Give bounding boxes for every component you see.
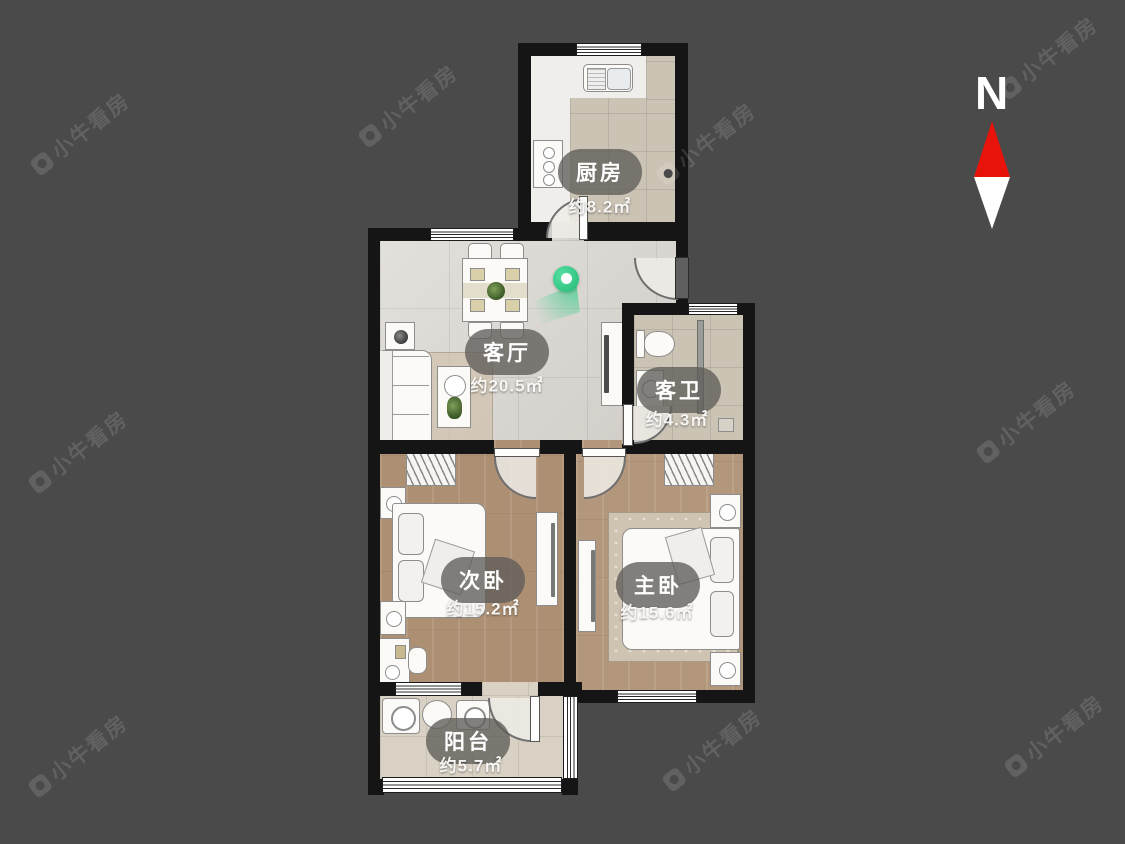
living-room-window [430,228,514,241]
watermark: 小牛看房 [353,57,464,153]
balcony-area: 约5.7㎡ [440,752,503,777]
kitchen-floor-tiles-strip [646,56,675,100]
wall [562,779,578,795]
watermark-logo-icon [29,150,56,177]
dining-table [462,258,528,322]
balcony-side-window [563,696,578,779]
watermark: 小牛看房 [23,403,134,499]
wall [368,682,395,696]
wall [462,682,482,696]
tv-console-bedroom1 [578,540,596,632]
watermark: 小牛看房 [657,701,768,797]
watermark-text: 小牛看房 [1019,687,1110,767]
watermark-text: 小牛看房 [1013,9,1104,89]
compass-arrow-south [974,177,1010,229]
watermark-text: 小牛看房 [677,701,768,781]
watermark-logo-icon [1003,752,1030,779]
kitchen-area: 约8.2㎡ [569,193,632,218]
desk [378,638,410,686]
bedroom2-balcony-window [395,682,462,696]
balcony-window [382,777,562,793]
nightstand [380,601,406,635]
watermark: 小牛看房 [25,85,136,181]
balcony-door-threshold [482,682,538,696]
watermark-text: 小牛看房 [373,57,464,137]
coffee-table [437,366,471,428]
watermark-logo-icon [357,122,384,149]
compass-north-label: N [975,66,1008,120]
wall [697,690,755,703]
wall [368,440,494,454]
sofa [378,350,432,448]
wall [676,228,688,258]
wall [576,690,617,703]
toilet-bowl [644,331,675,357]
desk-chair [408,647,427,674]
living-area: 约20.5㎡ [470,372,543,397]
watermark-logo-icon [975,438,1002,465]
watermark-text: 小牛看房 [43,707,134,787]
bedroom1-door [582,448,626,457]
watermark: 小牛看房 [999,687,1110,783]
location-pin-hole [561,273,572,284]
kitchen-window [576,43,642,56]
kitchen-sink [583,64,633,92]
bedroom2-door [494,448,540,457]
washing-machine [382,698,420,734]
wardrobe-bedroom2 [406,452,456,486]
wall [743,303,755,703]
bathroom-area: 约4.3㎡ [646,406,709,431]
wall [584,222,688,241]
wall [564,440,576,696]
floorplan-canvas: 厨房 约8.2㎡ 客厅 约20.5㎡ 客卫 约4.3㎡ 次卧 约15.2㎡ 主卧… [0,0,1125,844]
bedroom1-area: 约15.6㎡ [620,599,693,624]
watermark-text: 小牛看房 [45,85,136,165]
watermark-text: 小牛看房 [43,403,134,483]
bedroom1-window [617,690,697,703]
wall [368,228,380,795]
watermark: 小牛看房 [971,373,1082,469]
side-table-plant [385,322,415,350]
living-label: 客厅 [465,329,549,375]
watermark: 小牛看房 [23,707,134,803]
bathroom-door [623,404,633,446]
nightstand [710,494,741,528]
bathroom-window [688,303,738,315]
watermark-logo-icon [661,766,688,793]
watermark: 小牛看房 [993,9,1104,105]
floor-drain [718,418,734,432]
tv-console-bedroom2 [536,512,558,606]
nightstand [710,652,741,686]
wall [675,43,688,241]
watermark-logo-icon [27,772,54,799]
wall [518,43,531,235]
watermark-logo-icon [27,468,54,495]
compass-arrow-north [974,121,1010,177]
wall [622,303,634,406]
wardrobe-bedroom1 [664,452,714,486]
balcony-door [530,696,540,742]
watermark-text: 小牛看房 [991,373,1082,453]
entrance-door [675,257,689,299]
kitchen-label: 厨房 [558,149,642,195]
bedroom2-area: 约15.2㎡ [446,595,519,620]
